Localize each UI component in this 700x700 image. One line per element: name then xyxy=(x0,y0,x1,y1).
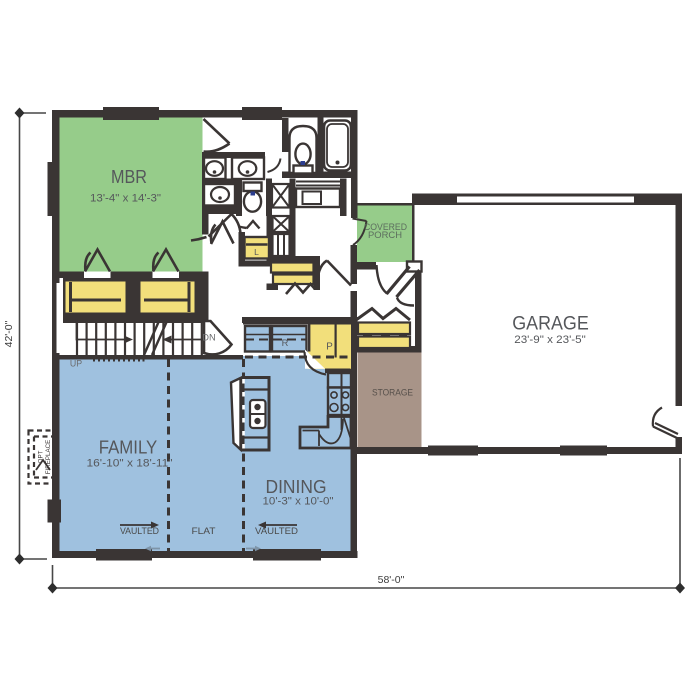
svg-text:L: L xyxy=(254,247,259,257)
svg-text:PORCH: PORCH xyxy=(368,230,402,240)
svg-text:FLAT: FLAT xyxy=(192,526,217,536)
svg-text:GARAGE: GARAGE xyxy=(512,313,589,335)
svg-text:FIREPLACE: FIREPLACE xyxy=(45,440,52,474)
svg-text:VAULTED: VAULTED xyxy=(255,526,298,536)
svg-text:FAMILY: FAMILY xyxy=(99,438,158,458)
svg-text:16'-10" x 18'-11": 16'-10" x 18'-11" xyxy=(87,458,173,470)
svg-text:DINING: DINING xyxy=(266,477,327,497)
svg-text:UP: UP xyxy=(70,359,82,369)
svg-text:10'-3" x 10'-0": 10'-3" x 10'-0" xyxy=(263,496,334,508)
svg-text:R: R xyxy=(282,338,289,348)
svg-text:VAULTED: VAULTED xyxy=(120,526,159,536)
svg-text:MBR: MBR xyxy=(111,167,147,187)
svg-text:STORAGE: STORAGE xyxy=(372,388,413,398)
svg-text:42'-0": 42'-0" xyxy=(3,320,15,347)
svg-text:DN: DN xyxy=(202,333,215,343)
svg-text:P: P xyxy=(326,342,333,353)
svg-text:13'-4" x 14'-3": 13'-4" x 14'-3" xyxy=(90,193,161,205)
svg-text:23'-9" x 23'-5": 23'-9" x 23'-5" xyxy=(514,334,586,346)
svg-text:OPT: OPT xyxy=(38,450,45,463)
svg-text:58'-0": 58'-0" xyxy=(378,574,405,586)
